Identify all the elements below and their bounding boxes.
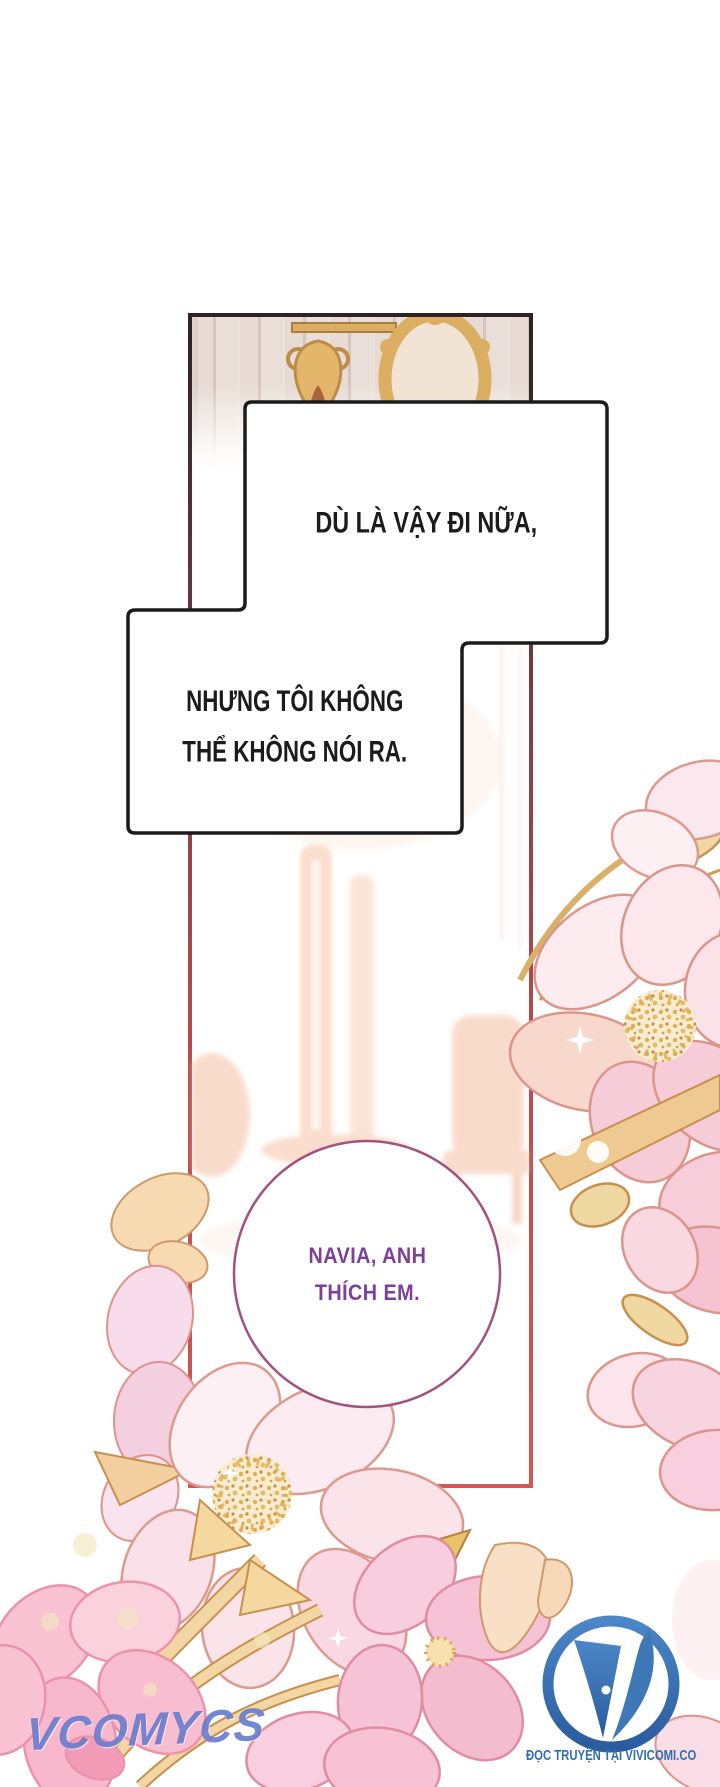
flower-petals [236, 1699, 445, 1787]
glitter-dots [41, 1533, 270, 1697]
flower-petals [579, 1342, 720, 1515]
publisher-caption: ĐỌC TRUYỆN TẠI VIVICOMI.CO [526, 1748, 682, 1764]
flower-pollen-center [624, 990, 696, 1062]
thought-bubble: NAVIA, ANH THÍCH EM. [233, 1141, 501, 1407]
comic-page: DÙ LÀ VẬY ĐI NỮA, NHƯNG TÔI KHÔNG THỂ KH… [0, 0, 720, 1787]
thought-bubble-line1: NAVIA, ANH [308, 1237, 426, 1274]
vivicomi-logo-icon [548, 1621, 674, 1747]
thought-bubble-text: NAVIA, ANH THÍCH EM. [308, 1237, 426, 1311]
speech-bubble-1: DÙ LÀ VẬY ĐI NỮA, [245, 402, 607, 643]
sparkles [48, 1464, 348, 1648]
flower-blossom [607, 1136, 720, 1327]
speech-bubble-1-text: DÙ LÀ VẬY ĐI NỮA, [315, 505, 537, 541]
speech-bubble-2-line1: NHƯNG TÔI KHÔNG [183, 675, 408, 726]
stem-branch [540, 1075, 720, 1190]
speech-bubble-2: NHƯNG TÔI KHÔNG THỂ KHÔNG NÓI RA. [128, 614, 462, 837]
thought-bubble-line2: THÍCH EM. [308, 1274, 426, 1311]
candelabra-silhouette [261, 845, 411, 1185]
speech-bubble-2-line2: THỂ KHÔNG NÓI RA. [183, 726, 408, 777]
flower-blossom [501, 849, 720, 1198]
speech-bubble-2-text: NHƯNG TÔI KHÔNG THỂ KHÔNG NÓI RA. [183, 675, 408, 776]
flower-blossom-pink [333, 1516, 551, 1780]
translator-watermark: VCOMYCS [24, 1697, 267, 1762]
